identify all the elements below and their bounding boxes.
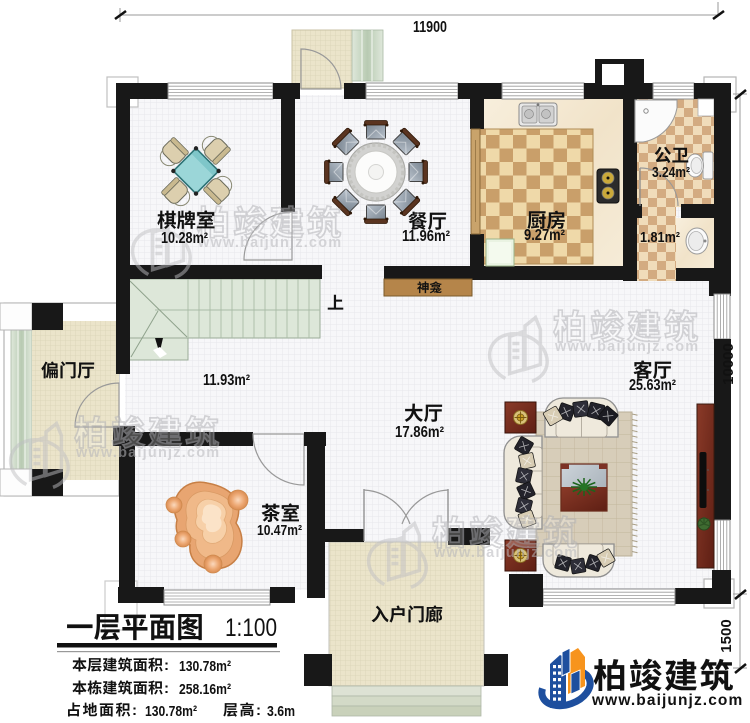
svg-text:10000: 10000 xyxy=(720,343,737,385)
svg-text:10.28m²: 10.28m² xyxy=(161,230,208,247)
svg-text:www.baijunjz.com: www.baijunjz.com xyxy=(554,339,699,355)
svg-text:3.24m²: 3.24m² xyxy=(652,165,690,181)
svg-text::: : xyxy=(256,702,261,719)
svg-text:11900: 11900 xyxy=(413,19,447,36)
svg-text:www.baijunjz.com: www.baijunjz.com xyxy=(197,235,342,251)
svg-text:17.86m²: 17.86m² xyxy=(395,424,444,441)
svg-text:258.16m²: 258.16m² xyxy=(179,681,231,698)
svg-text:3.6m: 3.6m xyxy=(267,703,295,720)
svg-text:130.78m²: 130.78m² xyxy=(145,703,197,720)
svg-text:11.96m²: 11.96m² xyxy=(402,228,450,245)
svg-text:1500: 1500 xyxy=(718,619,735,652)
svg-text:www.baijunjz.com: www.baijunjz.com xyxy=(75,445,220,461)
svg-text::: : xyxy=(164,657,169,674)
svg-text:1.81m²: 1.81m² xyxy=(640,230,680,246)
svg-text:www.baijunjz.com: www.baijunjz.com xyxy=(591,692,743,709)
svg-text:25.63m²: 25.63m² xyxy=(629,377,676,394)
svg-text::: : xyxy=(164,680,169,697)
svg-text:11.93m²: 11.93m² xyxy=(203,372,250,389)
svg-text:130.78m²: 130.78m² xyxy=(179,658,231,675)
svg-text:9.27m²: 9.27m² xyxy=(524,227,565,244)
svg-text:www.baijunjz.com: www.baijunjz.com xyxy=(433,545,578,561)
svg-text:10.47m²: 10.47m² xyxy=(257,523,302,539)
svg-text::: : xyxy=(132,702,137,719)
svg-text:1:100: 1:100 xyxy=(225,614,277,642)
